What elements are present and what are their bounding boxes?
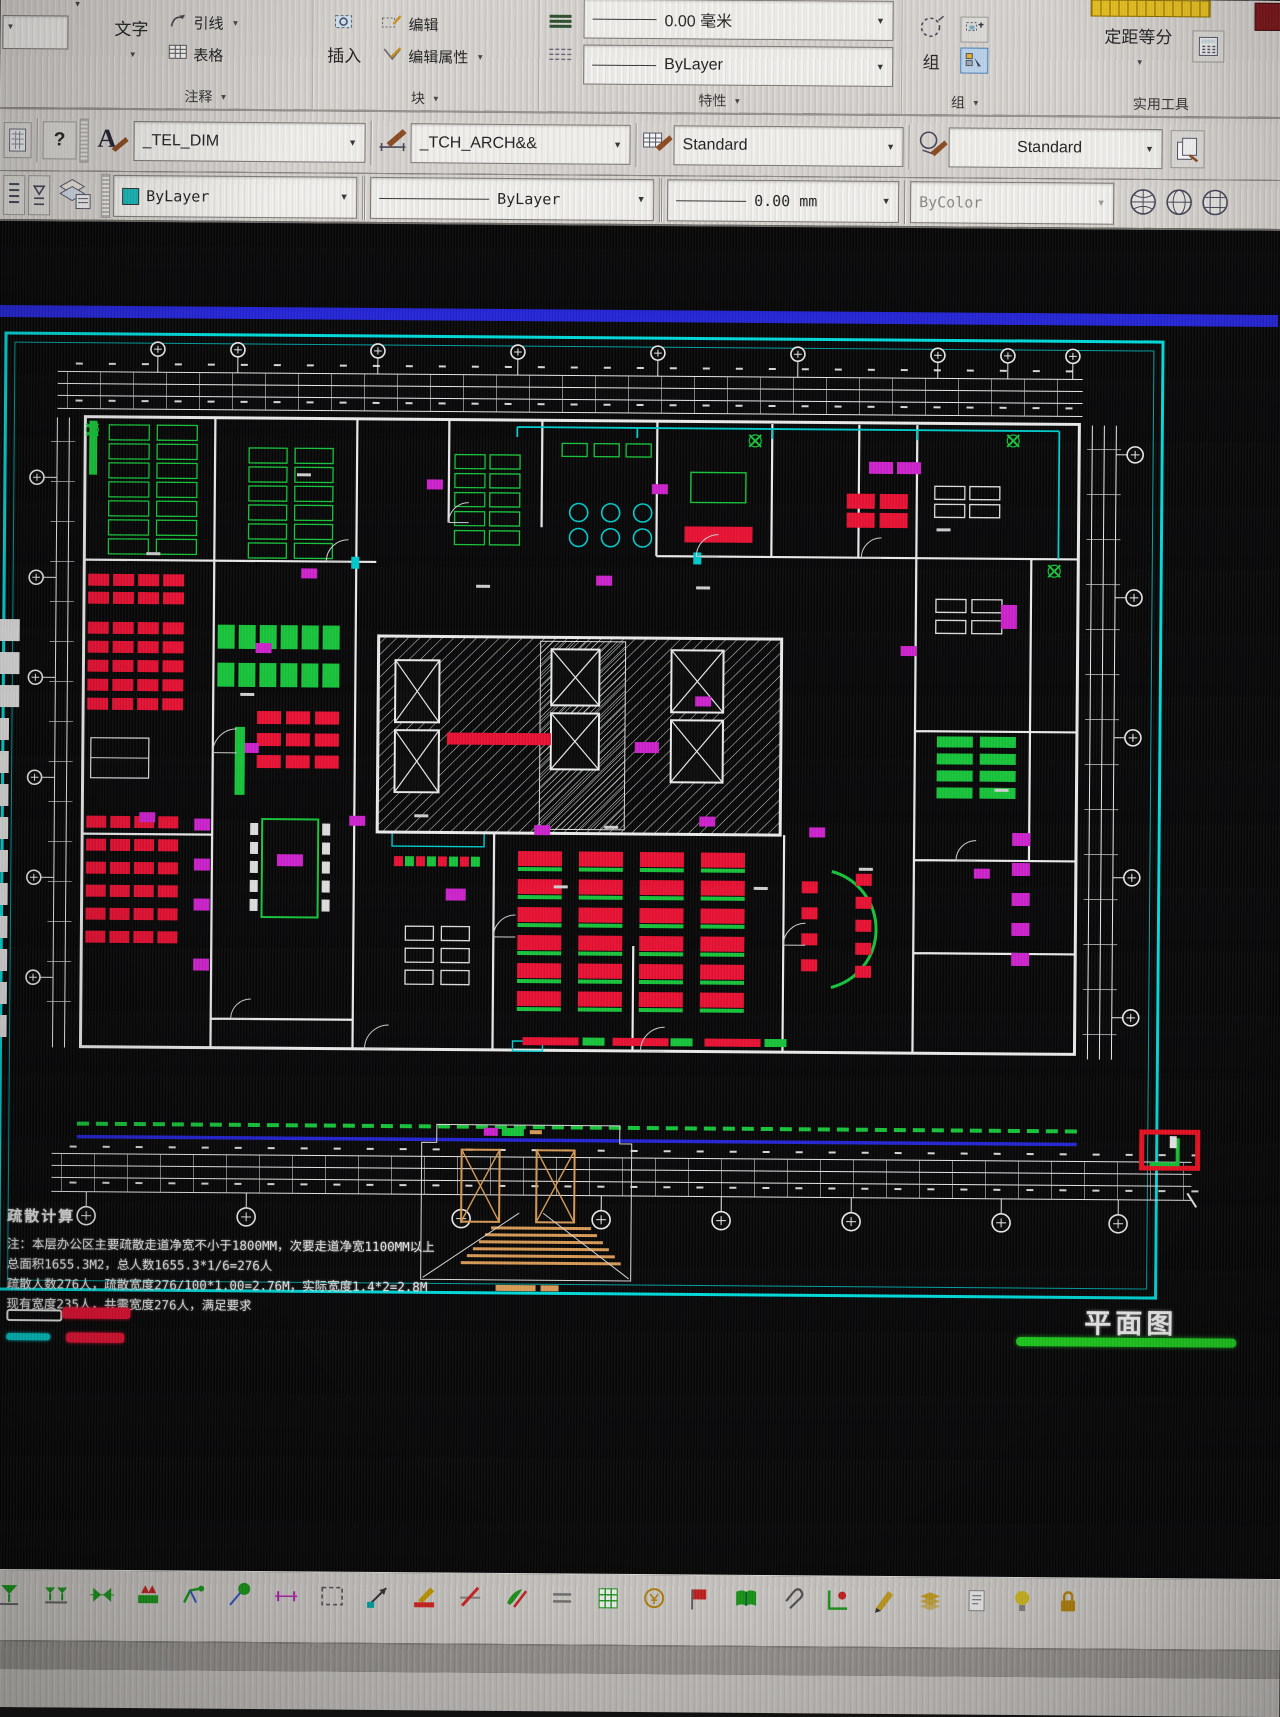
clipped-icon-2[interactable] (28, 175, 50, 215)
table-button[interactable]: 表格 (164, 41, 243, 68)
panel-utilities-footer[interactable]: 实用工具 (1030, 91, 1280, 117)
styles-toolbar: ? A _TEL_DIM ▼ _TCH_ARCH&& ▼ Standard ▼ … (0, 109, 1280, 181)
clip-icon[interactable] (776, 1582, 808, 1616)
linetype-combo[interactable]: ByLayer ▼ (370, 177, 654, 221)
ribbon-linetype-combo[interactable]: ByLayer ▼ (583, 45, 893, 87)
valve-icon[interactable] (0, 1576, 26, 1610)
edit-block-label: 编辑 (408, 14, 438, 35)
panel-properties: 0.00 毫米 ▼ ByLayer ▼ 特性 (539, 0, 903, 114)
plot-style-value: ByColor (919, 193, 1093, 212)
book-icon[interactable] (730, 1582, 762, 1616)
pen-plant-icon[interactable] (500, 1580, 532, 1614)
panel-annotate: 文字 引线 表格 注释 (100, 0, 314, 109)
partial-dropdown[interactable] (71, 0, 82, 12)
group-button[interactable]: 组 (910, 11, 953, 77)
help-button[interactable]: ? (42, 121, 76, 159)
ribbon-linetype-value: ByLayer (664, 56, 872, 76)
ungroup-icon[interactable] (960, 16, 988, 42)
dim-style-icon[interactable] (376, 125, 410, 160)
globe-icon-3[interactable] (1200, 187, 1230, 222)
corner-red-icon (1254, 3, 1280, 31)
ruler-icon (1091, 0, 1211, 17)
autocad-window: 文字 引线 表格 注释 (0, 0, 1280, 1717)
legend-cyan-bar (6, 1333, 50, 1340)
paper-stack-icon[interactable] (914, 1583, 946, 1617)
partial-combo[interactable] (2, 15, 68, 50)
edit-attr-icon (381, 45, 403, 67)
marker-icon[interactable] (408, 1579, 440, 1613)
table-style-arrow[interactable]: ▼ (883, 141, 899, 151)
dim-style-combo[interactable]: _TCH_ARCH&& ▼ (410, 123, 630, 165)
leader-icon (168, 11, 188, 33)
evacuation-note: 疏散计算 注：本层办公区主要疏散走道净宽不小于1800MM，次要走道净宽1100… (6, 1205, 567, 1318)
edit-block-button[interactable]: 编辑 (377, 11, 488, 38)
text-style-icon[interactable]: A (95, 121, 129, 160)
match-properties-icon[interactable] (547, 13, 573, 36)
lineweight-arrow[interactable]: ▼ (873, 16, 889, 26)
drawing-canvas[interactable]: 疏散计算 注：本层办公区主要疏散走道净宽不小于1800MM，次要走道净宽1100… (0, 221, 1280, 1579)
mleader-style-value: Standard (957, 138, 1141, 157)
table-style-combo[interactable]: Standard ▼ (673, 125, 903, 167)
table-icon (168, 43, 188, 65)
sheet-icon[interactable] (960, 1584, 992, 1618)
insert-block-icon (331, 13, 357, 40)
legend-red-bar-2 (66, 1333, 124, 1343)
double-valve-icon[interactable] (40, 1576, 72, 1610)
plot-style-combo[interactable]: ByColor ▼ (910, 181, 1114, 225)
measure-dropdown[interactable] (1133, 49, 1144, 69)
tag-icon[interactable] (684, 1581, 716, 1615)
pencil-icon[interactable] (868, 1583, 900, 1617)
plan-title: 平面图 (1084, 1302, 1177, 1342)
pump-icon[interactable] (132, 1577, 164, 1611)
text-button[interactable]: 文字 (108, 10, 154, 65)
mleader-style-arrow[interactable]: ▼ (1142, 143, 1158, 153)
bottom-toolbar (0, 1569, 1280, 1651)
color-swatch (122, 187, 139, 204)
linetype-arrow[interactable]: ▼ (872, 62, 888, 72)
panel-group: 组 组 (902, 0, 1031, 115)
linetype-arrow-2[interactable]: ▼ (633, 195, 649, 205)
dim-style-value: _TCH_ARCH&& (420, 134, 610, 153)
ribbon-lineweight-combo[interactable]: 0.00 毫米 ▼ (583, 0, 893, 41)
linetype-value: ByLayer (497, 190, 633, 209)
panel-properties-footer[interactable]: 特性 (539, 87, 901, 114)
lineweight-combo[interactable]: 0.00 mm ▼ (667, 179, 899, 223)
insert-label: 插入 (327, 42, 361, 67)
linetype-list-icon[interactable] (547, 46, 573, 69)
text-style-combo[interactable]: _TEL_DIM ▼ (133, 121, 365, 163)
legend-red-bar (62, 1307, 130, 1319)
ribbon-left-stub (0, 0, 101, 108)
layer-properties-icon[interactable] (56, 174, 92, 217)
group-circle-icon (916, 15, 946, 46)
panel-annotate-footer[interactable]: 注释 (100, 84, 312, 110)
mleader-style-icon[interactable] (914, 128, 948, 165)
plot-style-arrow[interactable]: ▼ (1093, 199, 1109, 209)
table-label: 表格 (193, 44, 223, 65)
mleader-style-combo[interactable]: Standard ▼ (948, 127, 1162, 169)
edit-attr-button[interactable]: 编辑属性 (377, 43, 488, 70)
leader-button[interactable]: 引线 (164, 9, 243, 36)
color-arrow[interactable]: ▼ (336, 193, 352, 203)
toolbar-grip-2[interactable] (101, 174, 110, 218)
leader-arrow-icon[interactable] (362, 1579, 394, 1613)
insert-button[interactable]: 插入 (321, 8, 367, 70)
measure-label: 定距等分 (1104, 22, 1172, 48)
crane-arm-icon[interactable] (178, 1577, 210, 1611)
floor-plan-svg (0, 221, 1279, 1579)
note-title: 疏散计算 (7, 1205, 567, 1230)
calculator-icon[interactable] (1192, 30, 1224, 62)
dim-style-arrow[interactable]: ▼ (610, 139, 626, 149)
ribbon-lineweight-value: 0.00 毫米 (664, 7, 872, 33)
linetype-swatch (592, 64, 656, 66)
panel-group-footer[interactable]: 组 (902, 90, 1029, 115)
panel-utilities: 定距等分 实用工具 (1030, 0, 1280, 117)
table-style-value: Standard (683, 136, 883, 156)
pipe-fitting-icon[interactable] (86, 1577, 118, 1611)
globe-icon-2[interactable] (1164, 187, 1194, 222)
survey-pin-icon[interactable] (224, 1578, 256, 1612)
globe-icon-1[interactable] (1128, 186, 1158, 221)
group-select-icon[interactable] (960, 47, 988, 73)
linetype-line-swatch (379, 197, 489, 199)
color-value: ByLayer (146, 187, 336, 206)
component-icon[interactable] (822, 1582, 854, 1616)
ribbon: 文字 引线 表格 注释 (0, 0, 1280, 119)
calc-grid-icon[interactable] (3, 121, 31, 157)
erase-icon[interactable] (454, 1580, 486, 1614)
edit-block-icon (381, 13, 403, 35)
legend-white-bar (6, 1309, 62, 1321)
panel-block: 插入 编辑 编辑属性 块 (313, 0, 540, 111)
copy-sheet-icon[interactable] (1170, 130, 1204, 168)
lineweight-line-swatch (676, 200, 746, 202)
table-style-icon[interactable] (641, 127, 673, 162)
text-button-label: 文字 (114, 14, 148, 39)
text-style-value: _TEL_DIM (143, 132, 345, 152)
grid-box-icon[interactable] (592, 1581, 624, 1615)
edit-attr-label: 编辑属性 (408, 46, 468, 67)
color-combo[interactable]: ByLayer ▼ (113, 175, 357, 219)
clipped-icon-1[interactable] (3, 175, 25, 215)
text-dropdown-icon[interactable] (126, 41, 137, 61)
lineweight-swatch (593, 18, 657, 20)
group-label: 组 (923, 48, 940, 73)
lineweight-arrow-2[interactable]: ▼ (878, 197, 894, 207)
text-style-arrow[interactable]: ▼ (345, 137, 361, 147)
leader-label: 引线 (193, 12, 223, 33)
selection-box-icon[interactable] (316, 1578, 348, 1612)
lock-icon[interactable] (1052, 1584, 1084, 1618)
toolbar-grip[interactable] (79, 118, 88, 162)
lineweight-value: 0.00 mm (754, 192, 878, 211)
panel-block-footer[interactable]: 块 (313, 85, 538, 111)
bulb-icon[interactable] (1006, 1584, 1038, 1618)
equal-lines-icon[interactable] (546, 1580, 578, 1614)
plan-title-underline (1016, 1337, 1236, 1348)
note-lines: 注：本层办公区主要疏散走道净宽不小于1800MM，次要走道净宽1100MM以上总… (6, 1234, 567, 1318)
dimension-icon[interactable] (270, 1578, 302, 1612)
measure-button[interactable]: 定距等分 (1098, 18, 1178, 74)
coin-icon[interactable] (638, 1581, 670, 1615)
